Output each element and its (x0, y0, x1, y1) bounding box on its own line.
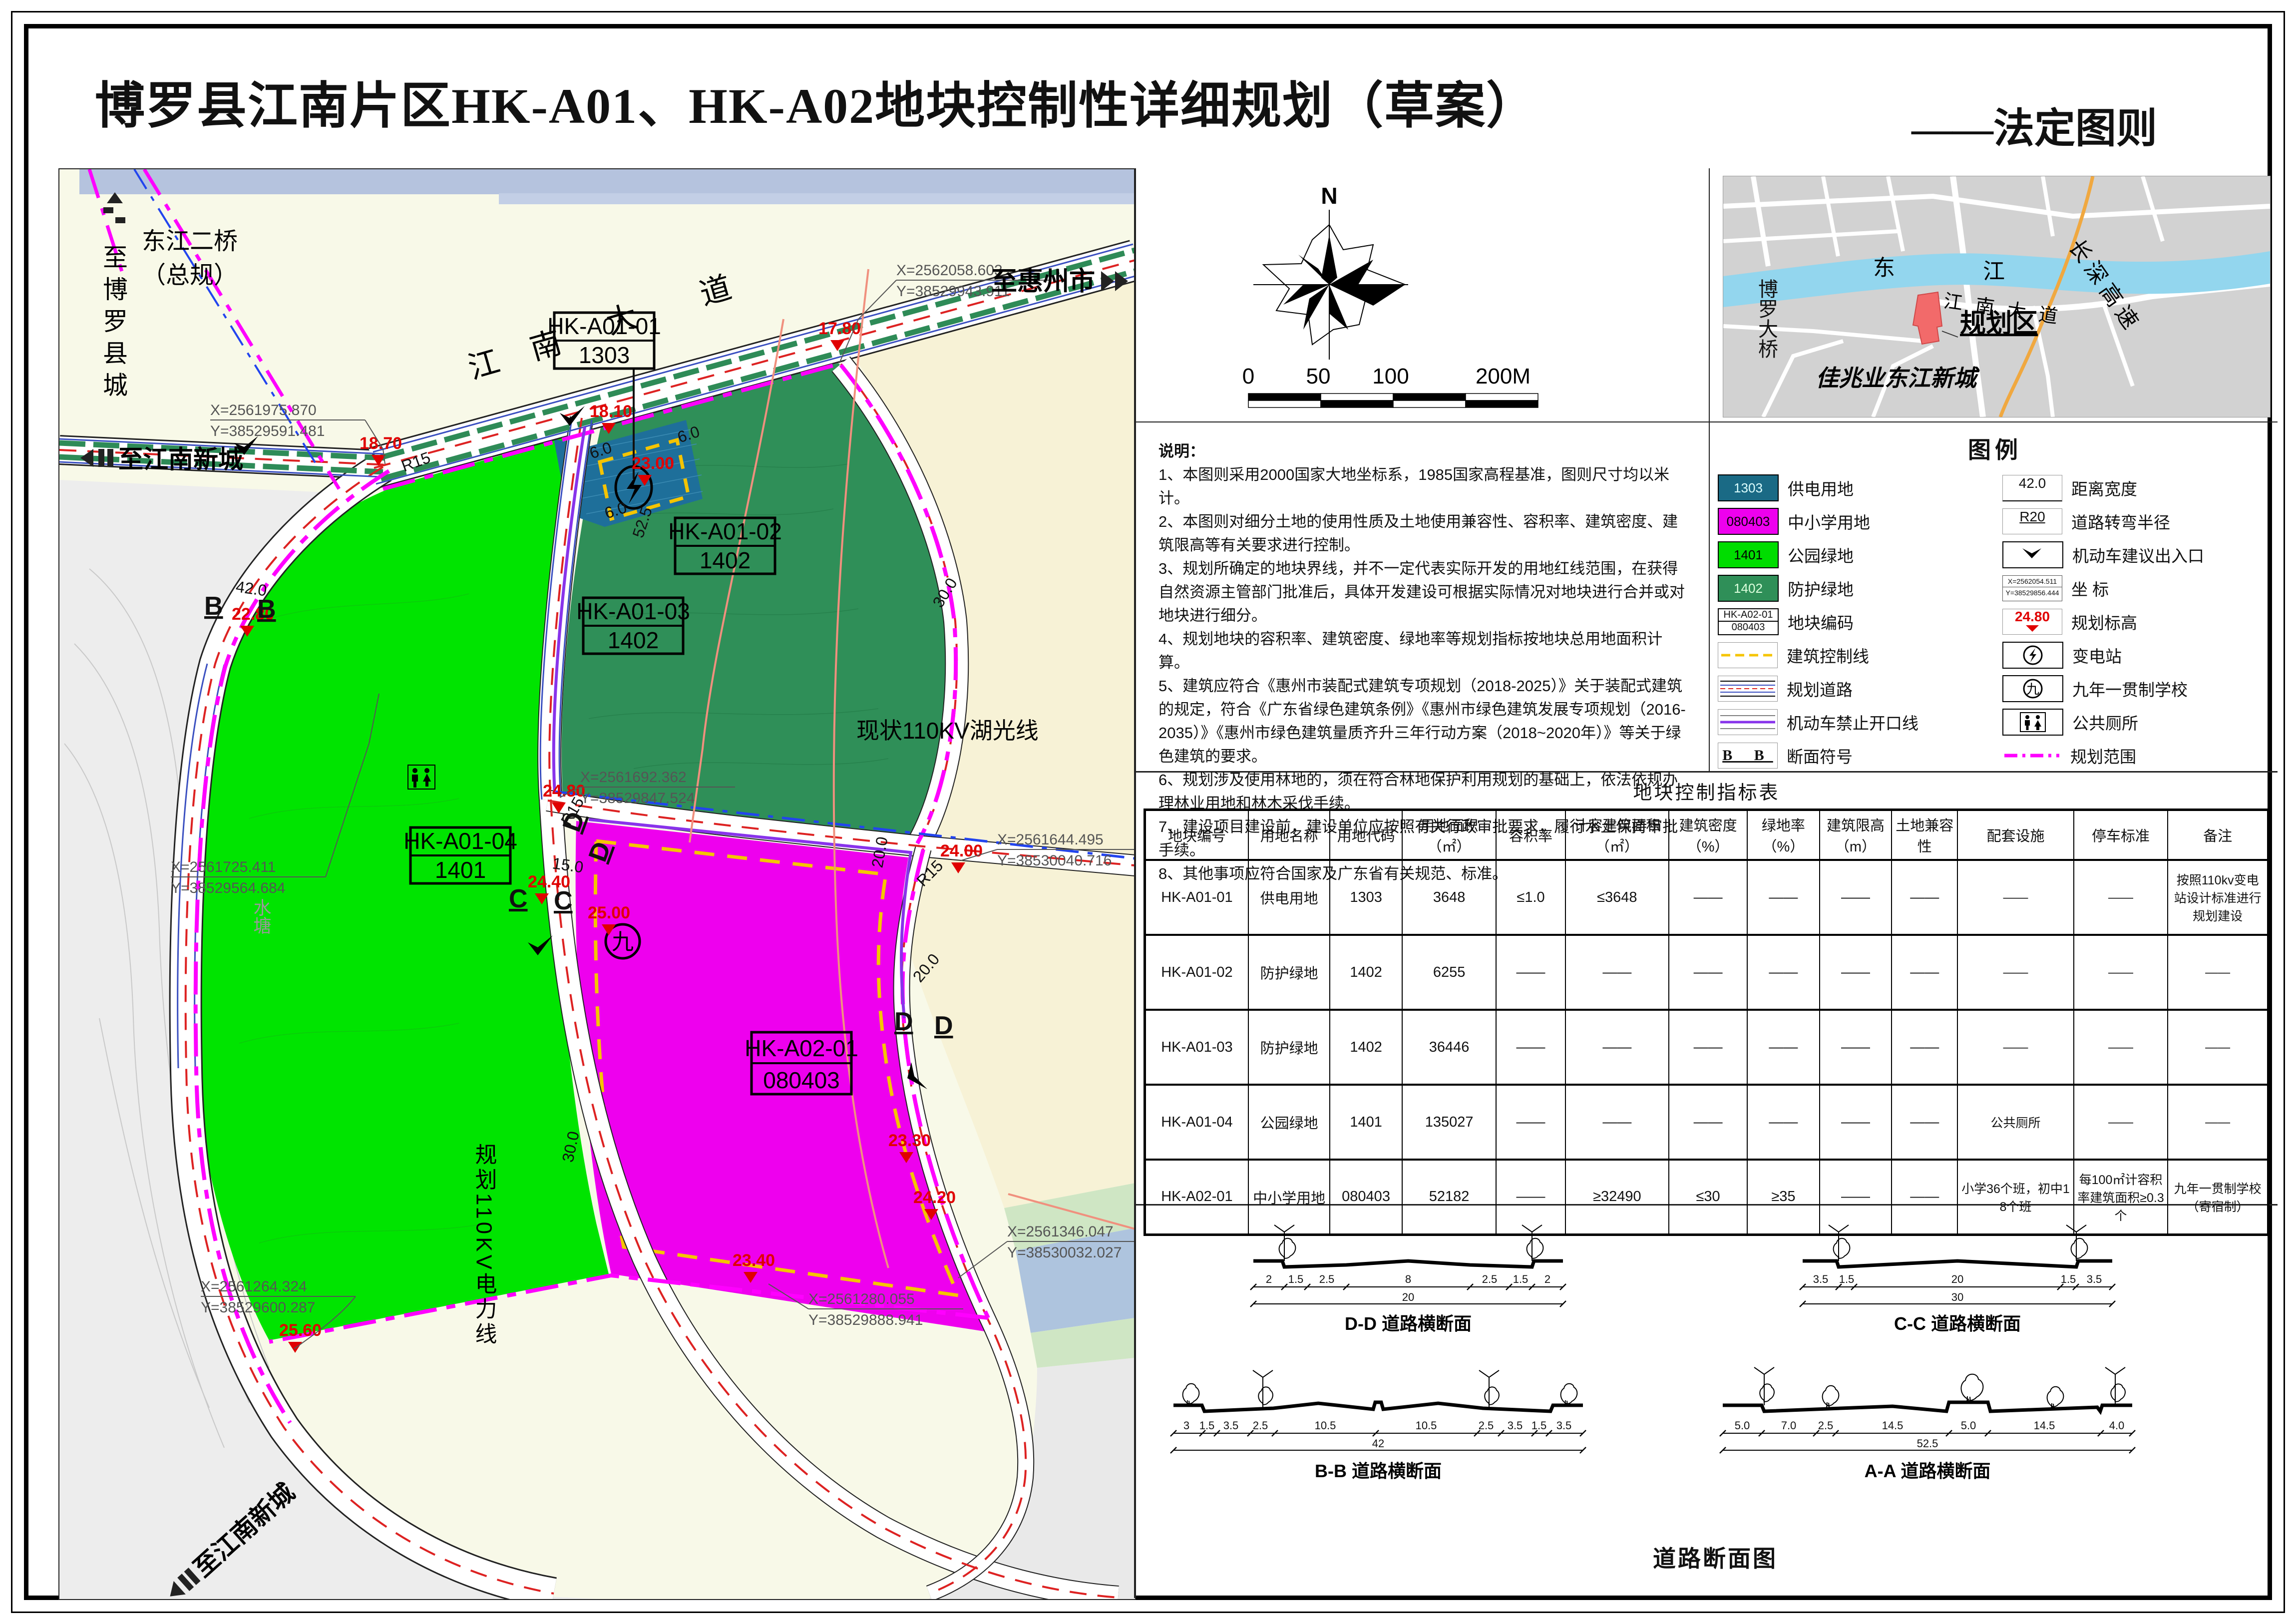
svg-text:0: 0 (1242, 364, 1254, 389)
svg-text:Y=38530032.027: Y=38530032.027 (1007, 1244, 1122, 1261)
svg-text:3: 3 (1183, 1419, 1189, 1432)
note-item: 5、建筑应符合《惠州市装配式建筑专项规划（2018-2025）》关于装配式建筑的… (1158, 674, 1688, 768)
note-item: 3、规划所确定的地块界线，并不一定代表实际开发的用地红线范围，在获得自然资源主管… (1158, 557, 1688, 627)
svg-text:30: 30 (1951, 1291, 1963, 1303)
svg-text:1.5: 1.5 (1288, 1273, 1304, 1285)
svg-text:8: 8 (1405, 1273, 1411, 1285)
svg-text:东: 东 (1873, 256, 1895, 280)
elev-2480: 24.80 (543, 782, 585, 801)
legend-panel: 图例 1303供电用地 080403中小学用地 1401公园绿地 1402防护绿… (1718, 432, 2272, 764)
elev-1870: 18.70 (360, 434, 402, 453)
section-cc: 3.5 1.5 20 1.5 3.5 30 C-C 道路横断面 (1783, 1211, 2132, 1341)
svg-text:3.5: 3.5 (1223, 1419, 1239, 1432)
svg-text:3.5: 3.5 (1813, 1273, 1829, 1285)
label-bridge-1: 东江二桥 (142, 228, 238, 255)
elev-2560: 25.60 (279, 1321, 322, 1340)
svg-text:Y=38529564.684: Y=38529564.684 (171, 880, 285, 896)
nine-school-swatch: 九 (2002, 675, 2063, 702)
elev-2330: 23.30 (888, 1131, 931, 1150)
svg-text:1.5: 1.5 (1513, 1273, 1529, 1285)
svg-text:九: 九 (2026, 682, 2039, 697)
legend-item-coordinate: X=2562054.511Y=38529856.444坐 标 (2002, 574, 2272, 602)
elev-1810: 18.10 (590, 402, 632, 421)
svg-text:4.0: 4.0 (2109, 1419, 2125, 1432)
svg-text:2.5: 2.5 (1482, 1273, 1498, 1285)
power-land-swatch: 1303 (1718, 474, 1779, 501)
svg-text:2: 2 (1544, 1273, 1550, 1285)
table-title: 地块控制指标表 (1144, 777, 2270, 805)
legend-item-toilet: 公共厕所 (2002, 708, 2272, 736)
svg-text:江: 江 (1983, 259, 2005, 284)
svg-text:1.5: 1.5 (2061, 1273, 2076, 1285)
svg-text:080403: 080403 (763, 1067, 840, 1093)
svg-text:3.5: 3.5 (1508, 1419, 1523, 1432)
section-symbol-swatch: B B (1718, 743, 1778, 769)
location-map: 博罗大桥 东 江 江南大道 长深高速 规划区 佳兆业东江新城 (1723, 176, 2271, 417)
legend-item-substation: 变电站 (2002, 641, 2272, 669)
legend-item-power-land: 1303供电用地 (1718, 474, 1987, 502)
svg-text:1303: 1303 (579, 342, 630, 368)
svg-text:1.5: 1.5 (1531, 1419, 1547, 1432)
svg-text:3.5: 3.5 (2087, 1273, 2102, 1285)
plan-sheet: 博罗县江南片区HK-A01、HK-A02地块控制性详细规划（草案） ——法定图则 (0, 0, 2296, 1624)
divider-compass-locator (1709, 168, 1710, 771)
section-dd: 2 1.5 2.5 8 2.5 1.5 2 20 D-D 道路横断面 (1233, 1211, 1583, 1341)
road-sections-panel: 2 1.5 2.5 8 2.5 1.5 2 20 D-D 道路横断面 (1144, 1211, 2272, 1591)
legend-item-distance: 42.0距离宽度 (2002, 474, 2272, 502)
svg-text:1.5: 1.5 (1839, 1273, 1855, 1285)
svg-text:52.5: 52.5 (1917, 1437, 1938, 1450)
svg-text:1401: 1401 (435, 857, 486, 883)
svg-text:200M: 200M (1476, 364, 1531, 389)
legend-item-planned-road: 规划道路 (1718, 675, 1987, 703)
svg-text:1402: 1402 (608, 627, 659, 653)
svg-text:X=2561644.495: X=2561644.495 (997, 831, 1104, 848)
svg-text:100: 100 (1372, 364, 1409, 389)
legend-item-no-opening: 机动车禁止开口线 (1718, 708, 1987, 736)
svg-text:X=2561346.047: X=2561346.047 (1007, 1223, 1114, 1240)
svg-text:HK-A02-01: HK-A02-01 (745, 1035, 858, 1061)
svg-text:X=2561264.324: X=2561264.324 (201, 1278, 307, 1295)
divider-map-right (1134, 168, 1136, 1598)
label-to-huizhou: 至惠州市 (991, 267, 1095, 296)
svg-text:14.5: 14.5 (2034, 1419, 2055, 1432)
svg-text:7.0: 7.0 (1781, 1419, 1797, 1432)
label-powerline: 规划110KV电力线 (472, 1143, 497, 1347)
protect-land-swatch: 1402 (1718, 575, 1779, 602)
svg-text:X=2562058.603: X=2562058.603 (896, 262, 1003, 279)
svg-text:HK-A01-04: HK-A01-04 (403, 828, 517, 854)
legend-item-park-land: 1401公园绿地 (1718, 541, 1987, 569)
svg-text:2.5: 2.5 (1253, 1419, 1268, 1432)
svg-text:5.0: 5.0 (1961, 1419, 1976, 1432)
north-label: N (1321, 183, 1337, 209)
elev-2500: 25.00 (588, 903, 630, 922)
label-huguang-line: 现状110KV湖光线 (856, 718, 1039, 744)
svg-text:3.5: 3.5 (1556, 1419, 1572, 1432)
compass-scale-panel: N 0 50 100 200M (1183, 180, 1683, 419)
svg-text:Y=38529591.481: Y=38529591.481 (210, 423, 325, 439)
table-row: HK-A01-02防护绿地 14026255 ———— ———— ———— ——… (1145, 935, 2269, 1010)
toilet-swatch (2002, 709, 2063, 736)
indicator-table: 地块编号用地名称 用地代码用地面积（㎡） 容积率计容建筑面积（㎡） 建筑密度（%… (1144, 809, 2270, 1236)
locator-bridge-label: 博罗大桥 (1755, 279, 1778, 359)
svg-text:C: C (554, 886, 573, 915)
legend-item-radius: R20道路转弯半径 (2002, 507, 2272, 535)
svg-text:2.5: 2.5 (1479, 1419, 1494, 1432)
svg-text:B: B (257, 595, 276, 624)
page-subtitle: ——法定图则 (1912, 95, 2157, 154)
notes-panel: 说明： 1、本图则采用2000国家大地坐标系，1985国家高程基准，图则尺寸均以… (1158, 439, 1688, 759)
locator-zone-label: 规划区 (1960, 309, 2038, 338)
plan-range-swatch (2002, 743, 2061, 768)
legend-item-plot-code: HK-A02-01080403地块编码 (1718, 608, 1987, 636)
svg-text:50: 50 (1306, 364, 1331, 389)
substation-swatch (2002, 642, 2063, 669)
legend-item-nine-school: 九九年一贯制学校 (2002, 675, 2272, 703)
svg-text:10.5: 10.5 (1416, 1419, 1437, 1432)
svg-text:Y=38529847.524: Y=38529847.524 (580, 790, 695, 807)
legend-item-elevation: 24.80规划标高 (2002, 608, 2272, 636)
planning-map: 九 HK-A01-011303 HK-A01-021402 HK-A01-031… (58, 168, 1136, 1600)
label-pond: 水塘 (251, 898, 272, 934)
distance-swatch: 42.0 (2002, 475, 2062, 501)
section-dd-title: D-D 道路横断面 (1345, 1313, 1472, 1334)
svg-text:Y=38530040.716: Y=38530040.716 (997, 852, 1112, 869)
svg-text:10.5: 10.5 (1315, 1419, 1336, 1432)
legend-item-entry: 机动车建议出入口 (2002, 541, 2272, 569)
note-item: 2、本图则对细分土地的使用性质及土地使用兼容性、容积率、建筑密度、建筑限高等有关… (1158, 510, 1688, 557)
school-land-swatch: 080403 (1718, 508, 1779, 535)
elev-2300: 23.00 (632, 454, 674, 473)
section-aa: 5.0 7.0 2.5 14.5 5.0 14.5 4.0 52.5 A-A 道… (1703, 1353, 2152, 1488)
label-to-jiangnan-top: 至江南新城 (118, 445, 243, 473)
svg-text:14.5: 14.5 (1882, 1419, 1904, 1432)
svg-text:2.5: 2.5 (1319, 1273, 1335, 1285)
svg-text:5.0: 5.0 (1735, 1419, 1750, 1432)
radius-swatch: R20 (2002, 508, 2062, 534)
table-row: HK-A01-04公园绿地 1401135027 ———— ———— ———— … (1145, 1085, 2269, 1160)
sections-caption: 道路断面图 (1653, 1541, 1778, 1574)
svg-text:2: 2 (1266, 1273, 1272, 1285)
indicator-table-panel: 地块控制指标表 地块编号用地名称 用地代码用地面积（㎡） 容积率计容建筑面积（㎡… (1144, 777, 2270, 1236)
legend-item-section-symbol: B B断面符号 (1718, 742, 1987, 770)
svg-text:D: D (894, 1007, 913, 1036)
no-opening-swatch (1718, 709, 1778, 735)
svg-text:20: 20 (1402, 1291, 1414, 1303)
svg-text:2.5: 2.5 (1818, 1419, 1834, 1432)
svg-text:42: 42 (1372, 1437, 1384, 1450)
svg-text:1.5: 1.5 (1199, 1419, 1215, 1432)
title-row: 博罗县江南片区HK-A01、HK-A02地块控制性详细规划（草案） ——法定图则 (95, 65, 2202, 137)
plot-code-swatch: HK-A02-01080403 (1718, 608, 1779, 635)
legend-title: 图例 (1718, 432, 2272, 465)
svg-text:X=2561725.411: X=2561725.411 (171, 859, 276, 875)
svg-text:20: 20 (1951, 1273, 1963, 1285)
locator-city-label: 佳兆业东江新城 (1816, 366, 1980, 391)
nine-school-label: 九 (612, 930, 634, 954)
svg-text:X=2561280.055: X=2561280.055 (808, 1291, 915, 1307)
river-band (79, 169, 1135, 194)
legend-item-school-land: 080403中小学用地 (1718, 507, 1987, 535)
elevation-swatch: 24.80 (2002, 609, 2062, 635)
control-line-swatch (1718, 642, 1778, 668)
divider-top-notes (1134, 421, 2278, 422)
svg-text:1402: 1402 (700, 547, 751, 573)
planning-map-svg: 九 HK-A01-011303 HK-A01-021402 HK-A01-031… (59, 169, 1135, 1599)
svg-text:Y=38529888.941: Y=38529888.941 (808, 1312, 923, 1328)
svg-text:D: D (934, 1011, 953, 1040)
coordinate-swatch: X=2562054.511Y=38529856.444 (2002, 575, 2062, 601)
table-row: HK-A01-03防护绿地 140236446 ———— ———— ———— —… (1145, 1010, 2269, 1085)
section-bb-title: B-B 道路横断面 (1315, 1461, 1442, 1481)
svg-text:HK-A01-03: HK-A01-03 (576, 598, 690, 624)
svg-text:C: C (509, 884, 528, 913)
planned-road-swatch (1718, 676, 1778, 702)
section-cc-title: C-C 道路横断面 (1894, 1313, 2021, 1334)
entry-swatch (2002, 541, 2063, 568)
page-title: 博罗县江南片区HK-A01、HK-A02地块控制性详细规划（草案） (95, 78, 1537, 134)
svg-text:B: B (204, 592, 223, 621)
scale-bar: 0 50 100 200M (1242, 364, 1538, 407)
section-aa-title: A-A 道路横断面 (1865, 1461, 1991, 1481)
svg-text:X=2561975.870: X=2561975.870 (210, 402, 317, 418)
legend-col-right: 42.0距离宽度 R20道路转弯半径 机动车建议出入口 X=2562054.51… (2002, 474, 2272, 770)
table-row: HK-A01-01供电用地 13033648 ≤1.0≤3648 ———— ——… (1145, 860, 2269, 935)
label-bridge-2: （总规） (142, 262, 238, 289)
notes-heading: 说明： (1158, 439, 1688, 463)
svg-text:Y=38529600.287: Y=38529600.287 (201, 1299, 315, 1316)
svg-text:HK-A01-01: HK-A01-01 (547, 313, 661, 339)
elev-2420: 24.20 (913, 1188, 956, 1207)
svg-text:X=2561692.362: X=2561692.362 (580, 769, 687, 786)
elev-2340: 23.40 (733, 1251, 775, 1270)
section-bb: 3 1.5 3.5 2.5 10.5 10.5 2.5 3.5 1.5 3.5 … (1153, 1353, 1603, 1488)
legend-item-plan-range: 规划范围 (2002, 742, 2272, 770)
elev-2400: 24.00 (940, 841, 983, 860)
park-land-swatch: 1401 (1718, 541, 1779, 568)
note-item: 1、本图则采用2000国家大地坐标系，1985国家高程基准，图则尺寸均以米计。 (1158, 463, 1688, 510)
legend-item-protect-land: 1402防护绿地 (1718, 574, 1987, 602)
note-item: 4、规划地块的容积率、建筑密度、绿地率等规划指标按地块总用地面积计算。 (1158, 627, 1688, 674)
label-to-boluo: 至博罗县城 (99, 244, 127, 404)
legend-item-control-line: 建筑控制线 (1718, 641, 1987, 669)
legend-col-left: 1303供电用地 080403中小学用地 1401公园绿地 1402防护绿地 H… (1718, 474, 1987, 770)
svg-text:HK-A01-02: HK-A01-02 (668, 518, 782, 544)
compass-rose-icon (1253, 210, 1408, 360)
table-header-row: 地块编号用地名称 用地代码用地面积（㎡） 容积率计容建筑面积（㎡） 建筑密度（%… (1145, 810, 2269, 860)
